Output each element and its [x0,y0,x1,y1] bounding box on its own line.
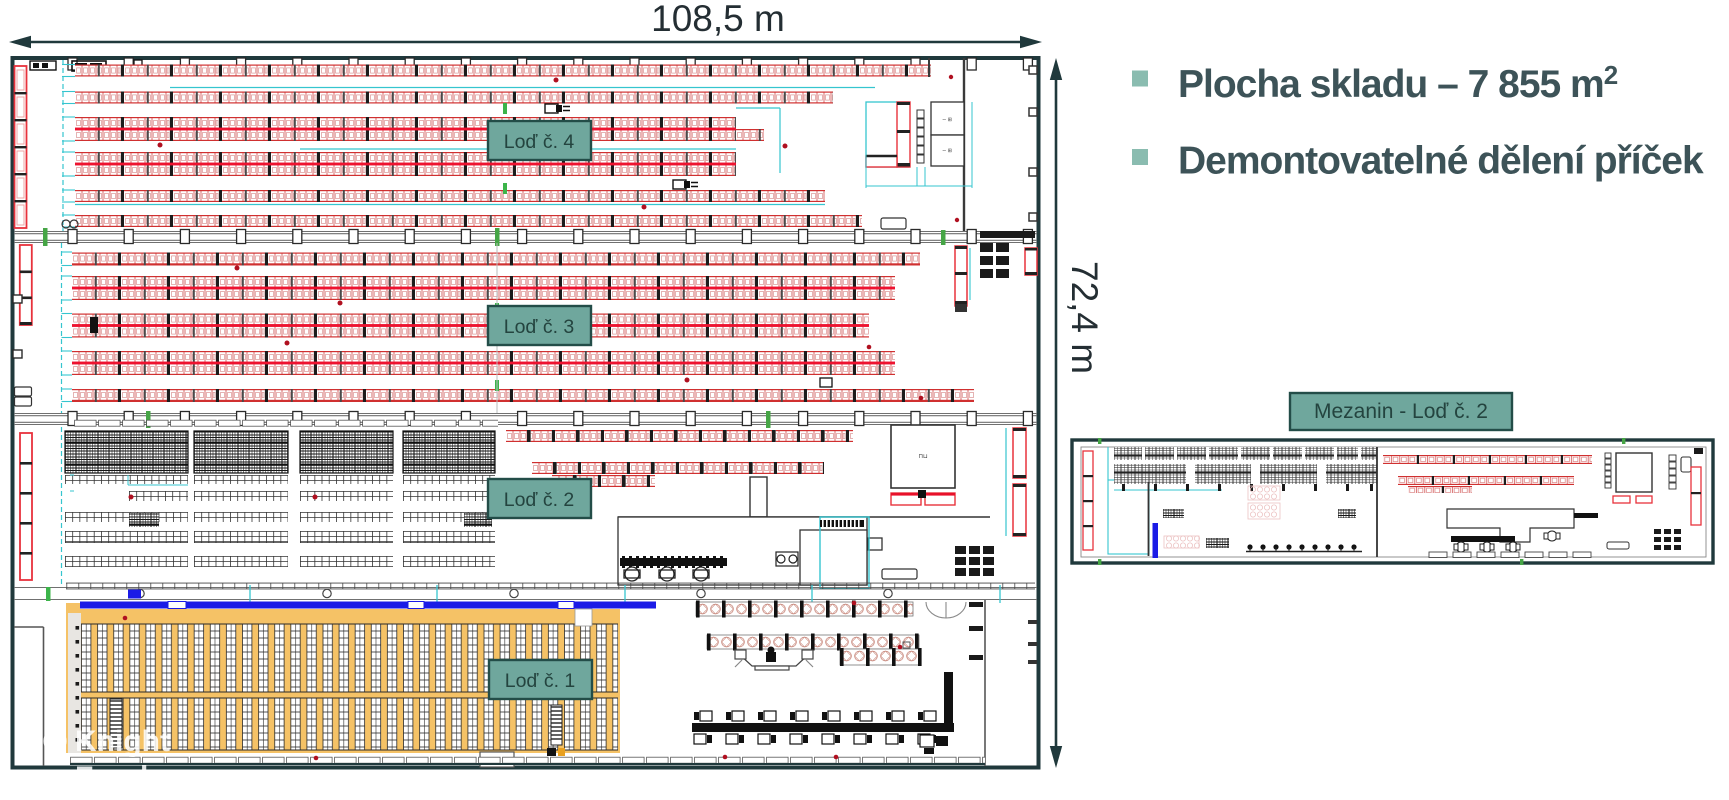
svg-text:⊓⊔: ⊓⊔ [918,454,928,460]
svg-text:Loď č. 3: Loď č. 3 [504,316,575,338]
svg-text:∼ ⊞: ∼ ⊞ [942,148,952,154]
svg-text:Loď č. 4: Loď č. 4 [504,131,575,153]
svg-text:Loď č. 1: Loď č. 1 [505,670,576,692]
svg-text:∼ ⊞: ∼ ⊞ [942,117,952,123]
svg-text:Plocha skladu – 7 855 m2: Plocha skladu – 7 855 m2 [1178,60,1618,106]
svg-text:Knight: Knight [75,725,170,758]
svg-text:Loď č. 2: Loď č. 2 [504,489,575,511]
svg-text:Mezanin - Loď č. 2: Mezanin - Loď č. 2 [1314,400,1488,423]
svg-text:Demontovatelné dělení příček: Demontovatelné dělení příček [1178,140,1704,183]
svg-text:Frank: Frank [75,761,157,794]
svg-text:72,4 m: 72,4 m [1064,261,1105,374]
svg-text:108,5 m: 108,5 m [651,0,785,39]
